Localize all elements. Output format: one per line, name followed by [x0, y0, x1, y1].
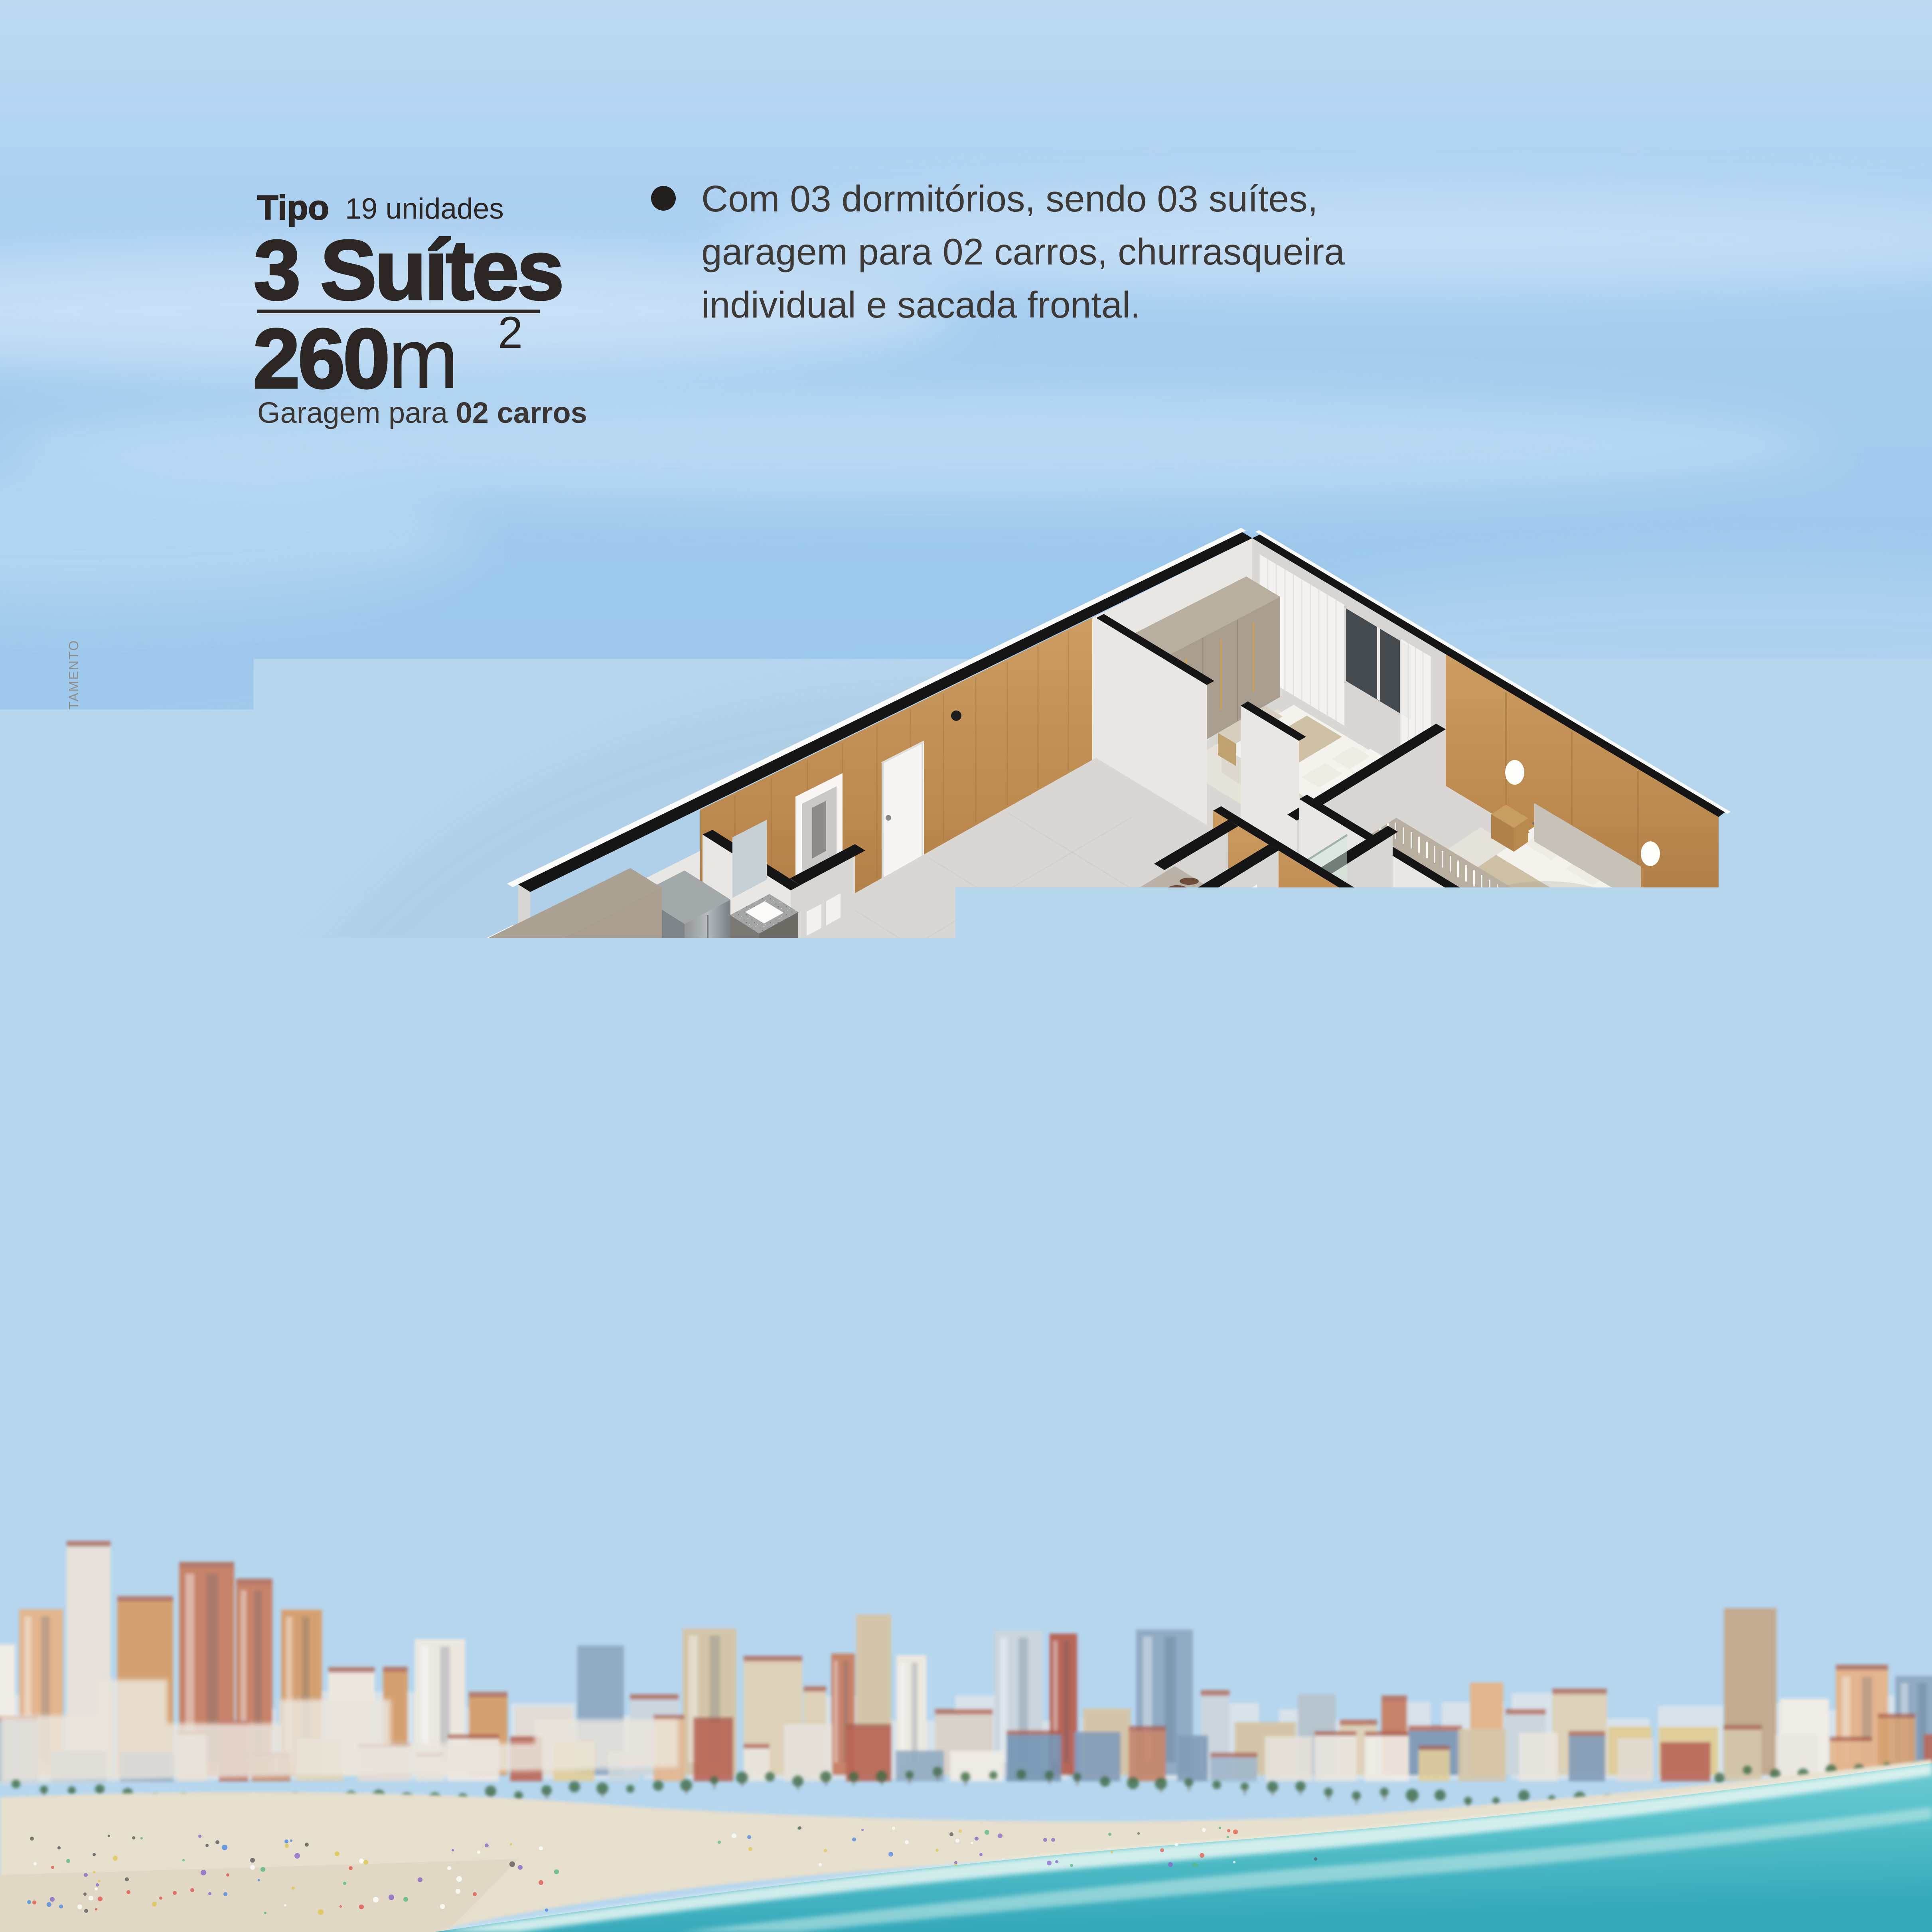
- svg-text:PLANTA 3D: PLANTA 3D: [1419, 1635, 1560, 1660]
- svg-text:19 unidades: 19 unidades: [345, 193, 504, 225]
- svg-text:2: 2: [498, 308, 523, 357]
- svg-text:individual e sacada frontal.: individual e sacada frontal.: [701, 284, 1141, 326]
- svg-text:Garagem para 02 carros: Garagem para 02 carros: [257, 396, 587, 429]
- svg-text:garagem para 02 carros, churra: garagem para 02 carros, churrasqueira: [701, 231, 1345, 272]
- svg-text:3 Suítes: 3 Suítes: [254, 223, 562, 317]
- svg-text:IMAGENS MERAMENTE ILUSTRATIVA: IMAGENS MERAMENTE ILUSTRATIVA | O MOBILI…: [66, 639, 81, 1322]
- svg-text:Tipo: Tipo: [257, 189, 329, 227]
- svg-text:260m: 260m: [253, 311, 458, 406]
- svg-text:Com 03 dormitórios, sendo 03 s: Com 03 dormitórios, sendo 03 suítes,: [701, 178, 1318, 219]
